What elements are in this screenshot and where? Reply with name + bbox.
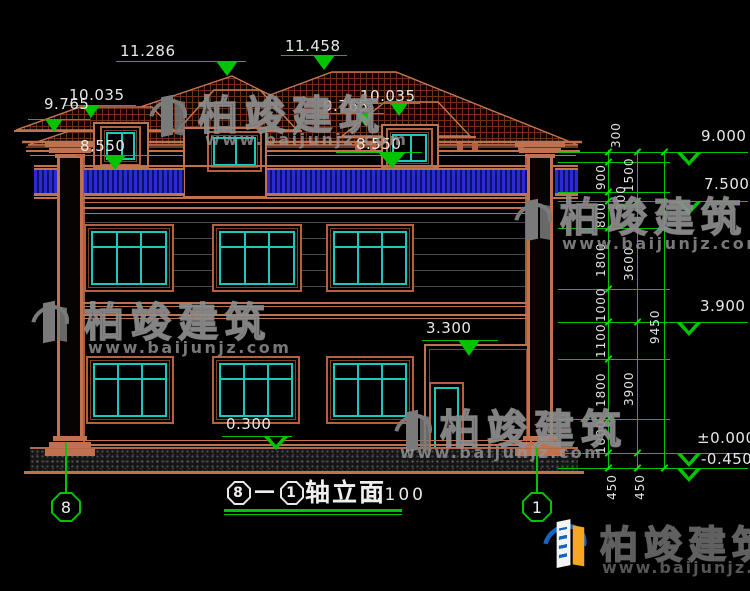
level-triangle-open (677, 153, 701, 166)
left-base-2 (49, 442, 91, 448)
right-capital-1 (519, 148, 561, 153)
elevation-drawing: 11.286 11.458 10.035 9.765 8.550 9.765 1… (0, 0, 750, 591)
railing-run-1 (84, 168, 184, 196)
ext-line-9000 (558, 152, 748, 153)
level-r-first: 3.900 (700, 299, 745, 314)
railing-run-2 (267, 168, 528, 196)
dim-a-900: 900 (595, 160, 607, 190)
title-underline-thin (224, 514, 402, 515)
axis-bubble-left-label: 8 (53, 494, 79, 520)
window-2f-center (212, 224, 302, 292)
window-2f-right (326, 224, 414, 292)
brand-url: www.baijunjz.com (602, 560, 750, 576)
level-porch-roof: 3.300 (426, 321, 471, 336)
left-base-1 (53, 436, 87, 441)
brand-logo (542, 516, 593, 578)
watermark-logo (148, 92, 192, 146)
level-triangle-open (677, 323, 701, 336)
watermark-logo (513, 196, 557, 250)
railing-stub-left (34, 168, 57, 196)
dim-b-1500: 1500 (623, 156, 635, 192)
title-underline-thick (224, 509, 402, 512)
window-2f-left (84, 224, 174, 292)
level-triangle (458, 340, 480, 356)
watermark-brand: 柏竣建筑 (84, 303, 272, 343)
dim-a-1000: 1000 (595, 288, 607, 322)
level-triangle (378, 152, 406, 168)
level-ridge-main: 11.458 (285, 39, 341, 54)
level-r-second: 7.500 (704, 177, 749, 192)
dim-a-1800b: 1800 (595, 371, 607, 407)
dim-a-1100: 1100 (595, 324, 607, 358)
level-r-top: 9.000 (701, 129, 746, 144)
dim-overall-9450: 9450 (649, 298, 661, 344)
ext-line-grade (558, 468, 748, 469)
ext-line (558, 289, 670, 290)
ext-line (558, 359, 670, 360)
level-triangle (390, 103, 408, 116)
level-left-lower-eave: 9.765 (44, 97, 89, 112)
balcony-floor-band (34, 197, 578, 199)
balcony-trim-3 (60, 213, 546, 214)
title-bubble-start: 8 (227, 481, 251, 505)
left-base-3 (45, 449, 95, 456)
right-capital-abacus (515, 143, 565, 147)
ext-line (558, 162, 670, 163)
axis-bubble-left: 8 (51, 492, 81, 522)
watermark-logo (30, 298, 74, 352)
level-triangle (45, 119, 63, 132)
level-r-grade: -0.450 (701, 452, 750, 467)
level-ridge-left: 11.286 (120, 44, 176, 59)
dim-a-300-top: 300 (610, 124, 622, 148)
level-triangle (313, 55, 335, 70)
level-left-parapet: 8.550 (80, 139, 125, 154)
watermark-url: www.baijunjz.com (88, 340, 291, 356)
level-triangle (216, 61, 238, 76)
watermark-url: www.baijunjz.com (562, 236, 750, 252)
window-1f-center (212, 356, 300, 424)
balcony-trim-1 (60, 202, 546, 203)
watermark-url: www.baijunjz.com (400, 445, 603, 461)
level-triangle-open (264, 437, 288, 450)
ground-line (24, 471, 584, 474)
dim-bottom-450-left: 450 (606, 474, 618, 500)
title-bubble-end: 1 (280, 481, 304, 505)
title-dash: － (252, 478, 279, 507)
dim-b-3900: 3900 (623, 368, 635, 406)
watermark-brand: 柏竣建筑 (560, 198, 748, 238)
level-r-zero: ±0.000 (697, 431, 750, 446)
level-triangle (104, 155, 126, 170)
level-triangle-open (677, 469, 701, 482)
balcony-trim-2 (60, 207, 546, 209)
drawing-scale: 1:100 (362, 487, 426, 504)
window-1f-left (86, 356, 174, 424)
level-triangle-open (677, 454, 701, 467)
level-porch-plinth: 0.300 (226, 417, 271, 432)
dim-bottom-450-right: 450 (634, 474, 646, 500)
axis-line-left (65, 443, 67, 493)
watermark-url: www.baijunjz.com (205, 132, 408, 148)
